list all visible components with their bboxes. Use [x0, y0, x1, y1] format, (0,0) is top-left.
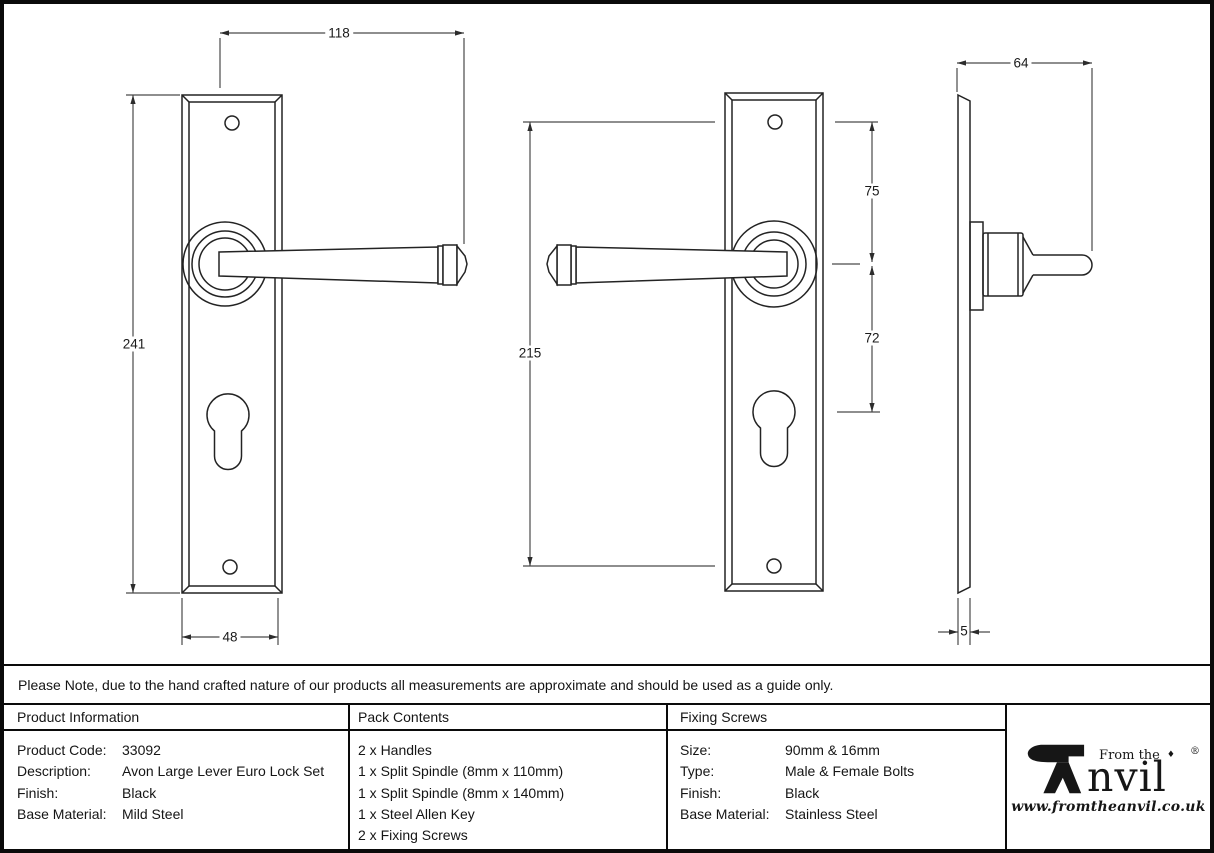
row-value: Black [122, 783, 156, 804]
product-info-header: Product Information [4, 705, 348, 731]
row-value: Mild Steel [122, 804, 183, 825]
dim-label-front-width: 118 [325, 26, 353, 41]
side-view [958, 95, 1092, 593]
fixing-screws-body: Size: 90mm & 16mm Type: Male & Female Bo… [668, 731, 1005, 825]
table-row-product-code: Product Code: 33092 [4, 740, 348, 761]
row-label: Base Material: [17, 804, 122, 825]
dim-label-plate-thickness: 5 [959, 624, 969, 639]
dim-label-handle-to-euro: 72 [861, 331, 882, 346]
technical-drawing-svg [4, 4, 1210, 662]
logo-from-the: From the [1099, 748, 1160, 763]
row-label: Description: [17, 761, 122, 782]
table-row-base-material: Base Material: Mild Steel [4, 804, 348, 825]
front-view-lever-left [547, 93, 823, 591]
row-value: Avon Large Lever Euro Lock Set [122, 761, 324, 782]
logo-url: www.fromtheanvil.co.uk [1011, 799, 1206, 815]
info-table: Product Information Product Code: 33092 … [4, 705, 1210, 849]
row-value: 33092 [122, 740, 161, 761]
logo-wordmark: nvil [1087, 759, 1192, 796]
table-row-type: Type: Male & Female Bolts [668, 761, 1005, 782]
row-value: Male & Female Bolts [785, 761, 914, 782]
technical-drawing: 118 241 48 215 75 72 64 5 [4, 4, 1210, 666]
product-info-body: Product Code: 33092 Description: Avon La… [4, 731, 348, 825]
row-value: Black [785, 783, 819, 804]
dim-label-projection: 64 [1010, 56, 1031, 71]
list-item: 1 x Split Spindle (8mm x 110mm) [350, 761, 666, 782]
product-info-column: Product Information Product Code: 33092 … [4, 705, 350, 849]
anvil-icon [1025, 740, 1087, 796]
registered-mark: ® [1190, 746, 1200, 757]
diamond-icon: ♦ [1167, 750, 1175, 760]
table-row-description: Description: Avon Large Lever Euro Lock … [4, 761, 348, 782]
brand-logo-cell: From the ♦ ® nvil www.fromtheanvil.co.uk [1007, 705, 1210, 849]
list-item: 2 x Handles [350, 740, 666, 761]
row-label: Finish: [17, 783, 122, 804]
pack-contents-column: Pack Contents 2 x Handles 1 x Split Spin… [350, 705, 668, 849]
anvil-logo: From the ♦ ® nvil [1025, 740, 1192, 796]
row-label: Type: [680, 761, 785, 782]
note-text: Please Note, due to the hand crafted nat… [18, 677, 833, 693]
row-label: Finish: [680, 783, 785, 804]
table-row-size: Size: 90mm & 16mm [668, 740, 1005, 761]
list-item: 2 x Fixing Screws [350, 825, 666, 846]
list-item: 1 x Steel Allen Key [350, 804, 666, 825]
dim-label-top-to-handle: 75 [861, 184, 882, 199]
table-row-finish: Finish: Black [4, 783, 348, 804]
pack-contents-body: 2 x Handles 1 x Split Spindle (8mm x 110… [350, 731, 666, 846]
dim-label-fixing-centres: 215 [516, 346, 545, 361]
fixing-screws-header: Fixing Screws [668, 705, 1005, 731]
front-view-lever-right [182, 95, 467, 593]
pack-contents-header: Pack Contents [350, 705, 666, 731]
row-label: Product Code: [17, 740, 122, 761]
note-row: Please Note, due to the hand crafted nat… [4, 666, 1210, 705]
table-row-base-material: Base Material: Stainless Steel [668, 804, 1005, 825]
row-label: Base Material: [680, 804, 785, 825]
dim-label-plate-width: 48 [219, 630, 240, 645]
list-item: 1 x Split Spindle (8mm x 140mm) [350, 783, 666, 804]
row-value: 90mm & 16mm [785, 740, 880, 761]
spec-sheet: 118 241 48 215 75 72 64 5 Please Note, d… [0, 0, 1214, 853]
row-value: Stainless Steel [785, 804, 878, 825]
dim-label-front-height: 241 [120, 337, 149, 352]
dimension-lines [126, 33, 1092, 645]
anvil-logo-text: From the ♦ ® nvil [1087, 748, 1192, 796]
logo-tagline: From the ♦ ® [1087, 748, 1192, 763]
row-label: Size: [680, 740, 785, 761]
fixing-screws-column: Fixing Screws Size: 90mm & 16mm Type: Ma… [668, 705, 1007, 849]
table-row-finish: Finish: Black [668, 783, 1005, 804]
